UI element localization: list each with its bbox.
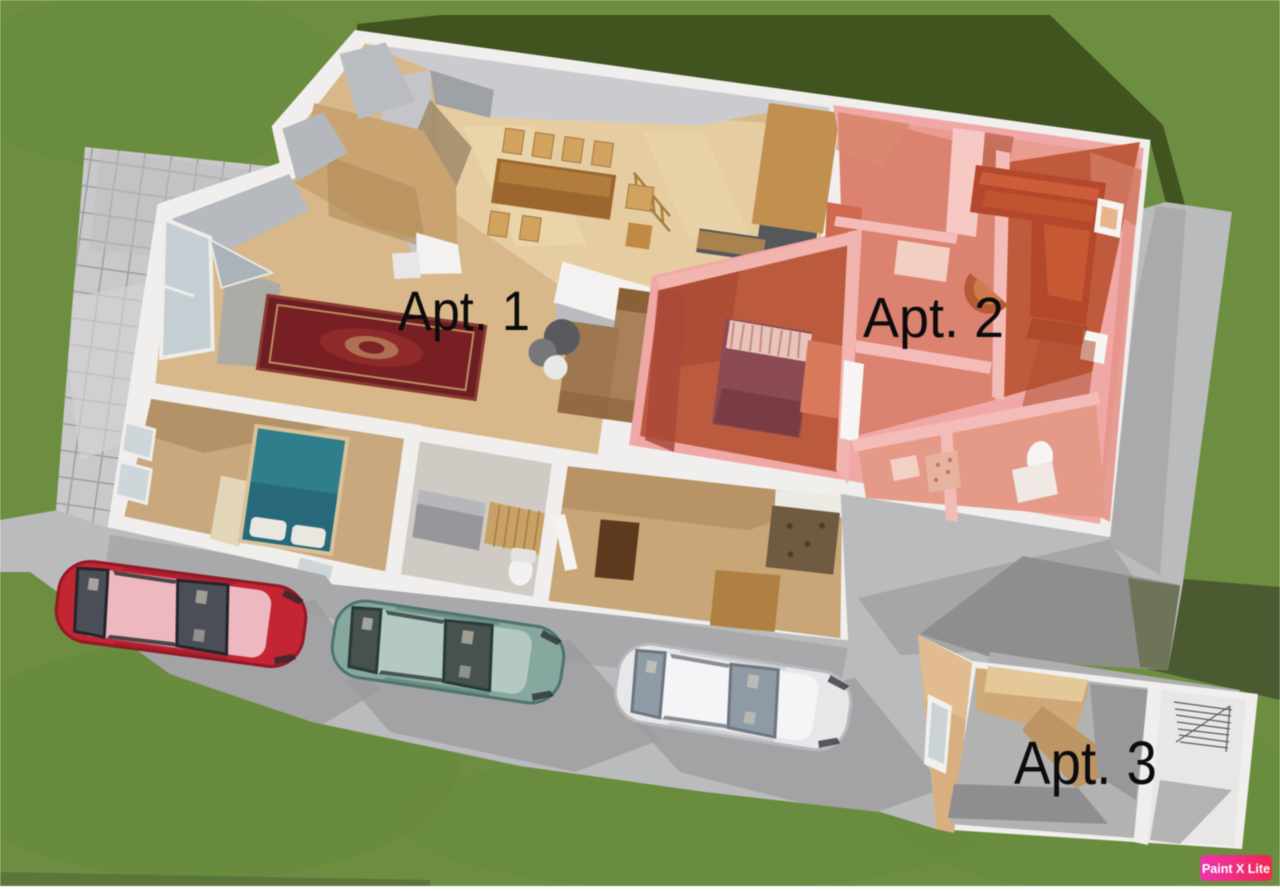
svg-text:Apt. 2: Apt. 2 (863, 286, 1004, 350)
svg-text:Apt. 3: Apt. 3 (1014, 729, 1157, 797)
svg-text:Apt. 1: Apt. 1 (398, 279, 530, 342)
svg-text:Paint X Lite: Paint X Lite (1202, 862, 1270, 876)
